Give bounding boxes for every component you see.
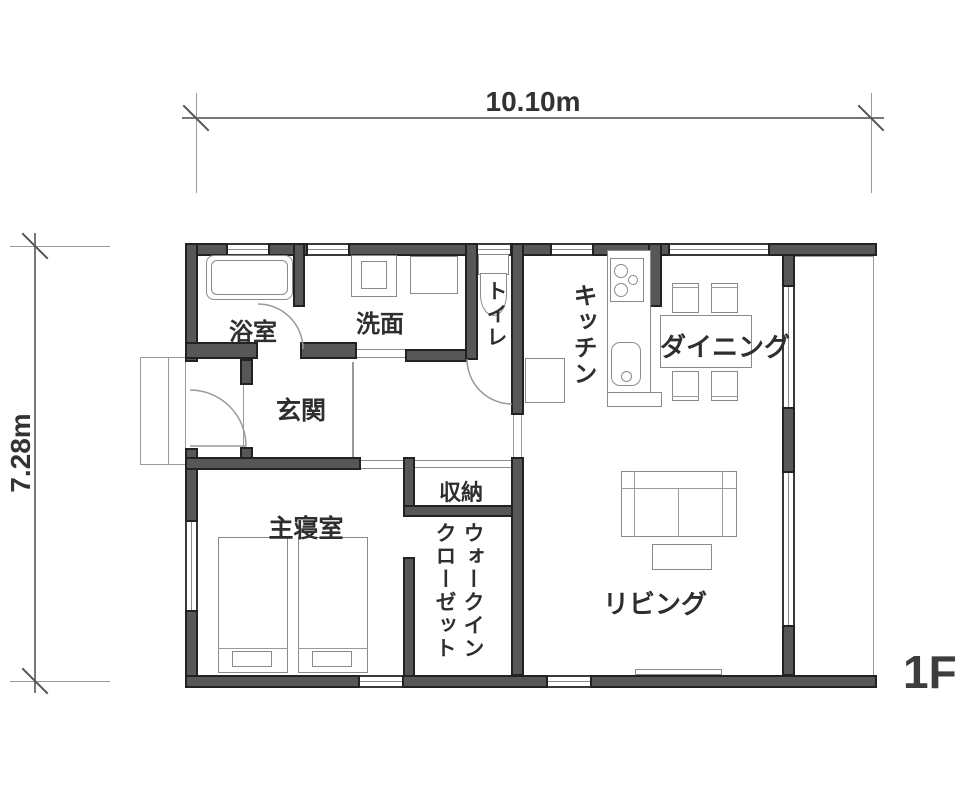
sofa-back-line	[621, 488, 737, 489]
kitchen-counter-end	[607, 392, 662, 407]
sink-drain	[621, 371, 632, 382]
coffee-table	[652, 544, 712, 570]
stove	[610, 258, 644, 302]
pillow	[232, 651, 272, 667]
sofa-arm-line	[722, 471, 723, 537]
wic-label-line-2: クローゼット	[430, 522, 458, 672]
refrigerator	[525, 358, 565, 403]
pillow	[312, 651, 352, 667]
room-label-toilet: トイレ	[480, 280, 510, 360]
room-label-kitchen: キッチン	[565, 283, 600, 395]
floor-label: 1F	[903, 645, 957, 699]
room-label-entrance: 玄関	[261, 391, 341, 427]
stove-burner	[628, 275, 638, 285]
room-label-storage: 収納	[421, 475, 501, 507]
sofa-seat-line	[678, 488, 679, 537]
vanity-counter	[410, 256, 458, 294]
room-label-dining: ダイニング	[660, 327, 780, 364]
washing-machine-drum	[361, 261, 387, 289]
entrance-door-arc	[190, 390, 246, 446]
wic-label-line-1: ウォークイン	[458, 522, 486, 672]
stove-burner	[614, 264, 628, 278]
room-label-walk-in-closet: ウォークイン クローゼット	[430, 522, 486, 672]
room-label-living: リビング	[595, 584, 715, 621]
door-swing-arcs	[0, 0, 970, 804]
room-label-washroom: 洗面	[340, 304, 420, 339]
chair-back-line	[672, 396, 699, 397]
bed-fold-line	[218, 648, 288, 649]
toilet-door-arc	[467, 359, 512, 404]
chair-back-line	[711, 287, 738, 288]
floor-plan-canvas: 10.10m 7.28m	[0, 0, 970, 804]
sofa-arm-line	[634, 471, 635, 537]
bathtub-inner	[211, 260, 288, 295]
room-label-bath: 浴室	[213, 312, 293, 347]
toilet-tank	[478, 254, 509, 275]
sofa	[621, 471, 737, 537]
chair-back-line	[672, 287, 699, 288]
stove-burner	[614, 283, 628, 297]
tv-board	[635, 669, 722, 675]
bed-fold-line	[298, 648, 368, 649]
room-label-bedroom: 主寝室	[256, 509, 356, 545]
chair-back-line	[711, 396, 738, 397]
